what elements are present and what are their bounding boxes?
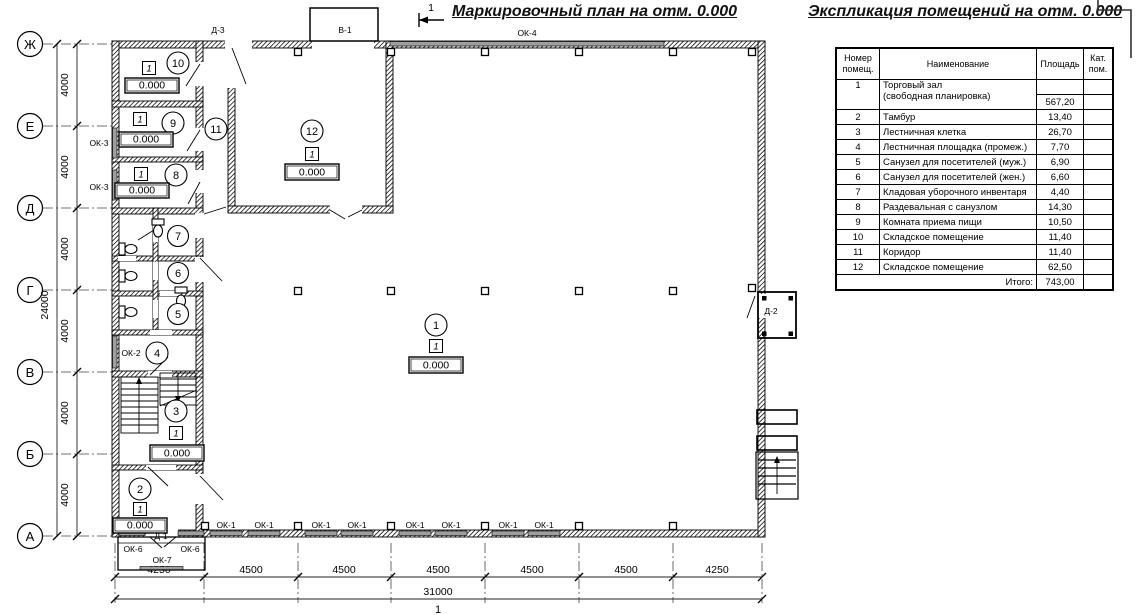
room-number-cell: 4 bbox=[836, 140, 880, 155]
floor-plan: Ж Е Д Г В Б А 4000 4000 4000 4000 4000 4… bbox=[0, 0, 840, 615]
room-number: 7 bbox=[175, 231, 181, 243]
room-number-cell: 10 bbox=[836, 230, 880, 245]
room-name-cell: Складское помещение bbox=[880, 260, 1037, 275]
table-total-row: Итого: 743,00 bbox=[836, 275, 1113, 291]
room-marker-1: 1 1 0.000 bbox=[409, 314, 463, 373]
room-area-cell: 26,70 bbox=[1037, 125, 1084, 140]
room-name-cell: Кладовая уборочного инвентаря bbox=[880, 185, 1037, 200]
window-ok1 bbox=[399, 531, 431, 536]
window-ok1 bbox=[435, 531, 467, 536]
wall-openings bbox=[118, 40, 766, 538]
window-label: ОК-1 bbox=[254, 520, 273, 530]
room-name-cell: Комната приема пищи bbox=[880, 215, 1037, 230]
table-row: 6Санузел для посетителей (жен.)6,60 bbox=[836, 170, 1113, 185]
room-cat-cell bbox=[1084, 80, 1114, 95]
room-schedule-table: Номер помещ. Наименование Площадь Кат. п… bbox=[835, 47, 1114, 291]
room-number: 9 bbox=[170, 118, 176, 130]
floor-number: 1 bbox=[146, 64, 151, 75]
room-area-cell: 62,50 bbox=[1037, 260, 1084, 275]
window-label: ОК-6 bbox=[180, 544, 199, 554]
toilet-icon bbox=[119, 306, 137, 318]
window-ok6 bbox=[178, 531, 204, 536]
total-value-cell: 743,00 bbox=[1037, 275, 1084, 291]
total-cat-cell bbox=[1084, 275, 1114, 291]
window-label: ОК-7 bbox=[152, 555, 171, 565]
window-ok2 bbox=[113, 336, 118, 368]
window-label: ОК-3 bbox=[89, 182, 108, 192]
room-marker-7: 7 bbox=[168, 226, 189, 247]
dim-text: 4500 bbox=[614, 564, 638, 576]
dim-text: 4500 bbox=[520, 564, 544, 576]
window-ok1 bbox=[341, 531, 373, 536]
room-number: 3 bbox=[173, 406, 179, 418]
bottom-axis-number: 1 bbox=[435, 604, 441, 615]
floor-number: 1 bbox=[137, 505, 142, 516]
room-area-cell: 6,60 bbox=[1037, 170, 1084, 185]
elevation-mark: 0.000 bbox=[423, 360, 449, 372]
room-cat-cell bbox=[1084, 230, 1114, 245]
window-label: ОК-1 bbox=[498, 520, 517, 530]
dim-text: 4000 bbox=[59, 237, 71, 261]
room-number-cell: 3 bbox=[836, 125, 880, 140]
toilet-icon bbox=[119, 270, 137, 282]
window-label: ОК-2 bbox=[121, 348, 140, 358]
dim-text: 4500 bbox=[332, 564, 356, 576]
axis-label: Е bbox=[26, 119, 35, 134]
room-area-cell: 567,20 bbox=[1037, 95, 1084, 110]
room-area-cell: 10,50 bbox=[1037, 215, 1084, 230]
room-name-cell: Лестничная площадка (промеж.) bbox=[880, 140, 1037, 155]
window-ok1 bbox=[528, 531, 560, 536]
window-label: ОК-1 bbox=[347, 520, 366, 530]
room-marker-6: 6 bbox=[168, 263, 189, 284]
window-ok1 bbox=[492, 531, 524, 536]
floor-number: 1 bbox=[137, 115, 142, 126]
room-cat-cell bbox=[1084, 185, 1114, 200]
table-row: 4Лестничная площадка (промеж.)7,70 bbox=[836, 140, 1113, 155]
room-name-cell: Санузел для посетителей (жен.) bbox=[880, 170, 1037, 185]
room-name-cell: Тамбур bbox=[880, 110, 1037, 125]
toilet-icon bbox=[152, 219, 164, 237]
table-row: 10Складское помещение11,40 bbox=[836, 230, 1113, 245]
window-label: ОК-4 bbox=[517, 28, 536, 38]
room-area-cell: 13,40 bbox=[1037, 110, 1084, 125]
table-header-row: Номер помещ. Наименование Площадь Кат. п… bbox=[836, 48, 1113, 80]
room-cat-cell bbox=[1084, 140, 1114, 155]
window-ok1 bbox=[248, 531, 280, 536]
room-cat-cell bbox=[1084, 200, 1114, 215]
dim-text: 4000 bbox=[59, 155, 71, 179]
room-cat-cell bbox=[1084, 170, 1114, 185]
room-number: 1 bbox=[433, 320, 439, 332]
room-marker-9: 9 1 0.000 bbox=[119, 112, 184, 147]
floor-number: 1 bbox=[173, 429, 178, 440]
room-marker-4: 4 bbox=[146, 342, 168, 364]
room-name-cell: Складское помещение bbox=[880, 230, 1037, 245]
table-row: 5Санузел для посетителей (муж.)6,90 bbox=[836, 155, 1113, 170]
room-cat-cell bbox=[1084, 155, 1114, 170]
room-marker-12: 12 1 0.000 bbox=[285, 120, 339, 180]
door-label: Д-2 bbox=[764, 306, 778, 316]
room-cat-cell bbox=[1084, 125, 1114, 140]
table-row: 8Раздевальная с санузлом14,30 bbox=[836, 200, 1113, 215]
room-marker-10: 10 1 0.000 bbox=[125, 52, 189, 93]
door-label: Д-3 bbox=[211, 25, 225, 35]
room-marker-2: 2 1 0.000 bbox=[113, 478, 167, 533]
room-name-cell: Лестничная клетка bbox=[880, 125, 1037, 140]
dim-text: 4000 bbox=[59, 319, 71, 343]
room-cat-cell bbox=[1084, 95, 1114, 110]
dim-text: 4000 bbox=[59, 483, 71, 507]
axis-label: А bbox=[26, 529, 35, 544]
window-label: ОК-1 bbox=[534, 520, 553, 530]
dim-text: 4500 bbox=[426, 564, 450, 576]
axis-bubbles: Ж Е Д Г В Б А bbox=[18, 32, 43, 549]
toilet-icon bbox=[119, 243, 137, 255]
section-number: 1 bbox=[428, 2, 434, 14]
room-area-cell: 14,30 bbox=[1037, 200, 1084, 215]
room-number-cell: 5 bbox=[836, 155, 880, 170]
section-cut-marker: 1 bbox=[419, 2, 444, 27]
elevation-mark: 0.000 bbox=[133, 134, 159, 146]
table-row: 1 Торговый зал (свободная планировка) bbox=[836, 80, 1113, 95]
room-number-cell: 6 bbox=[836, 170, 880, 185]
room-number: 8 bbox=[173, 170, 179, 182]
room-number: 4 bbox=[154, 348, 160, 360]
room-number: 11 bbox=[210, 124, 221, 136]
col-header-number: Номер помещ. bbox=[836, 48, 880, 80]
room-number: 10 bbox=[172, 58, 184, 70]
columns bbox=[202, 49, 756, 530]
elevation-mark: 0.000 bbox=[129, 185, 155, 197]
window-label: ОК-1 bbox=[405, 520, 424, 530]
room-cat-cell bbox=[1084, 215, 1114, 230]
dim-text: 4500 bbox=[239, 564, 263, 576]
window-ok1 bbox=[305, 531, 337, 536]
floor-number: 1 bbox=[433, 342, 438, 353]
col-header-name: Наименование bbox=[880, 48, 1037, 80]
axis-label: Г bbox=[26, 283, 33, 298]
window-label: ОК-1 bbox=[311, 520, 330, 530]
room-area-cell: 4,40 bbox=[1037, 185, 1084, 200]
room-name-cell: Санузел для посетителей (муж.) bbox=[880, 155, 1037, 170]
table-row: 12Складское помещение62,50 bbox=[836, 260, 1113, 275]
drawing-sheet: Маркировочный план на отм. 0.000 Эксплик… bbox=[0, 0, 1137, 615]
room-area-cell bbox=[1037, 80, 1084, 95]
window-label: ОК-1 bbox=[216, 520, 235, 530]
room-area-cell: 11,40 bbox=[1037, 230, 1084, 245]
dim-text: 4250 bbox=[705, 564, 729, 576]
axis-label: Б bbox=[26, 447, 35, 462]
axis-label: Д bbox=[26, 201, 35, 216]
col-header-area: Площадь bbox=[1037, 48, 1084, 80]
window-label: ОК-1 bbox=[441, 520, 460, 530]
room-area-cell: 6,90 bbox=[1037, 155, 1084, 170]
elevation-mark: 0.000 bbox=[127, 520, 153, 532]
window-label: ОК-3 bbox=[89, 138, 108, 148]
room-number-cell: 12 bbox=[836, 260, 880, 275]
window-label: ОК-6 bbox=[123, 544, 142, 554]
room-number: 12 bbox=[306, 126, 318, 138]
main-staircase bbox=[121, 373, 197, 433]
room-number-cell: 7 bbox=[836, 185, 880, 200]
elevation-mark: 0.000 bbox=[139, 80, 165, 92]
room-name-line2: (свободная планировка) bbox=[883, 91, 1033, 102]
room-name-cell: Раздевальная с санузлом bbox=[880, 200, 1037, 215]
walls bbox=[112, 41, 765, 537]
schedule-title: Экспликация помещений на отм. 0.000 bbox=[808, 3, 1122, 21]
room-number: 2 bbox=[137, 484, 143, 496]
axis-label: Ж bbox=[24, 37, 36, 52]
table-row: 3Лестничная клетка26,70 bbox=[836, 125, 1113, 140]
table-row: 9Комната приема пищи10,50 bbox=[836, 215, 1113, 230]
window-ok1 bbox=[210, 531, 242, 536]
window-ok3 bbox=[113, 128, 118, 158]
elevation-mark: 0.000 bbox=[299, 167, 325, 179]
room-number: 6 bbox=[175, 268, 181, 280]
dim-total-text: 24000 bbox=[39, 290, 51, 319]
room-number-cell: 1 bbox=[836, 80, 880, 110]
room-number-cell: 11 bbox=[836, 245, 880, 260]
door-label: Д-1 bbox=[154, 531, 168, 541]
room-name-cell: Торговый зал (свободная планировка) bbox=[880, 80, 1037, 110]
gate-label: В-1 bbox=[338, 25, 352, 35]
room-name-line1: Торговый зал bbox=[883, 80, 1033, 91]
dim-text: 4000 bbox=[59, 401, 71, 425]
dim-text: 4000 bbox=[59, 73, 71, 97]
window-ok4 bbox=[390, 42, 664, 47]
room-marker-5: 5 bbox=[168, 304, 189, 325]
room-area-cell: 11,40 bbox=[1037, 245, 1084, 260]
dim-total-text: 31000 bbox=[423, 586, 452, 598]
frame-corner-mark bbox=[1090, 0, 1137, 60]
table-row: 2Тамбур13,40 bbox=[836, 110, 1113, 125]
table-row: 11Коридор11,40 bbox=[836, 245, 1113, 260]
floor-number: 1 bbox=[138, 170, 143, 181]
room-cat-cell bbox=[1084, 245, 1114, 260]
room-marker-8: 8 1 0.000 bbox=[115, 164, 187, 198]
room-cat-cell bbox=[1084, 110, 1114, 125]
elevation-mark: 0.000 bbox=[164, 448, 190, 460]
room-marker-11: 11 bbox=[205, 118, 227, 140]
room-number-cell: 2 bbox=[836, 110, 880, 125]
room-number: 5 bbox=[175, 309, 181, 321]
room-name-cell: Коридор bbox=[880, 245, 1037, 260]
table-row: 7Кладовая уборочного инвентаря4,40 bbox=[836, 185, 1113, 200]
axis-label: В bbox=[26, 365, 35, 380]
floor-number: 1 bbox=[309, 150, 314, 161]
room-number-cell: 8 bbox=[836, 200, 880, 215]
room-number-cell: 9 bbox=[836, 215, 880, 230]
total-label-cell: Итого: bbox=[836, 275, 1037, 291]
room-cat-cell bbox=[1084, 260, 1114, 275]
room-area-cell: 7,70 bbox=[1037, 140, 1084, 155]
